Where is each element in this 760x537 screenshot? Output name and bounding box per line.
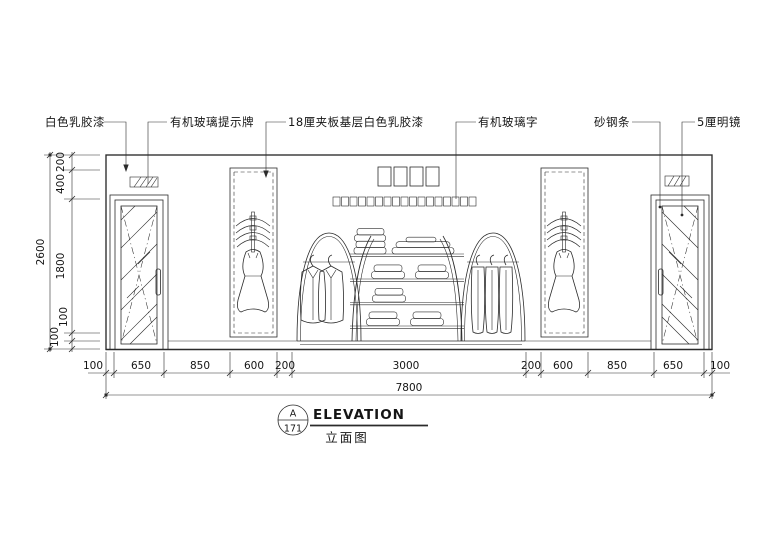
left-arch-rack — [297, 233, 361, 341]
sign-small-characters — [333, 197, 476, 206]
bottom-dimension-chain: 100 650 850 600 200 3000 200 600 850 650… — [83, 352, 730, 399]
callout-white-latex-paint: 白色乳胶漆 — [45, 115, 105, 129]
dim-bottom-6: 200 — [521, 360, 541, 372]
callout-clear-mirror: 5厘明镜 — [697, 115, 741, 129]
dim-bottom-7: 600 — [553, 360, 573, 372]
callout-acrylic-letters: 有机玻璃字 — [478, 115, 538, 129]
title-block: A 171 ELEVATION 立面图 — [278, 405, 428, 445]
callouts: 白色乳胶漆 有机玻璃提示牌 18厘夹板基层白色乳胶漆 有机玻璃字 砂钢条 5厘明… — [45, 115, 741, 216]
elevation-drawing: 白色乳胶漆 有机玻璃提示牌 18厘夹板基层白色乳胶漆 有机玻璃字 砂钢条 5厘明… — [0, 0, 760, 537]
right-door-sign — [665, 176, 689, 186]
dim-bottom-8: 850 — [607, 360, 627, 372]
dim-left-0: 200 — [55, 152, 67, 172]
callout-steel-strip: 砂钢条 — [594, 115, 630, 129]
title-english: ELEVATION — [313, 407, 405, 423]
sheet-number: 171 — [284, 424, 302, 435]
detail-letter: A — [290, 409, 297, 420]
left-door-sign — [130, 177, 158, 187]
wall-outline — [106, 155, 712, 350]
dim-left-1: 400 — [55, 174, 67, 194]
dim-bottom-total: 7800 — [396, 382, 423, 394]
dim-bottom-4: 200 — [275, 360, 295, 372]
dim-left-total: 2600 — [35, 239, 47, 266]
title-chinese: 立面图 — [325, 430, 369, 445]
dim-bottom-1: 650 — [131, 360, 151, 372]
center-display-unit — [297, 229, 525, 345]
right-display-panel — [541, 168, 588, 337]
dim-bottom-0: 100 — [83, 360, 103, 372]
right-mirror-door — [651, 195, 709, 350]
sign-large-characters — [378, 167, 439, 186]
dim-bottom-2: 850 — [190, 360, 210, 372]
right-arch-rack — [461, 233, 525, 341]
left-dimension-chain: 200 400 1800 100 100 2600 — [35, 152, 100, 352]
dim-left-2: 1800 — [55, 253, 67, 280]
left-mirror-door — [110, 195, 168, 350]
dim-bottom-9: 650 — [663, 360, 683, 372]
dim-bottom-5: 3000 — [393, 360, 420, 372]
dim-left-3: 100 — [58, 307, 70, 327]
callout-acrylic-sign-board: 有机玻璃提示牌 — [170, 115, 254, 129]
dim-bottom-3: 600 — [244, 360, 264, 372]
left-display-panel — [230, 168, 277, 337]
dim-bottom-10: 100 — [710, 360, 730, 372]
callout-plywood-base: 18厘夹板基层白色乳胶漆 — [288, 115, 424, 129]
elevation-sheet: 白色乳胶漆 有机玻璃提示牌 18厘夹板基层白色乳胶漆 有机玻璃字 砂钢条 5厘明… — [0, 0, 760, 537]
folded-clothes — [354, 229, 454, 326]
dim-left-4: 100 — [49, 327, 61, 347]
